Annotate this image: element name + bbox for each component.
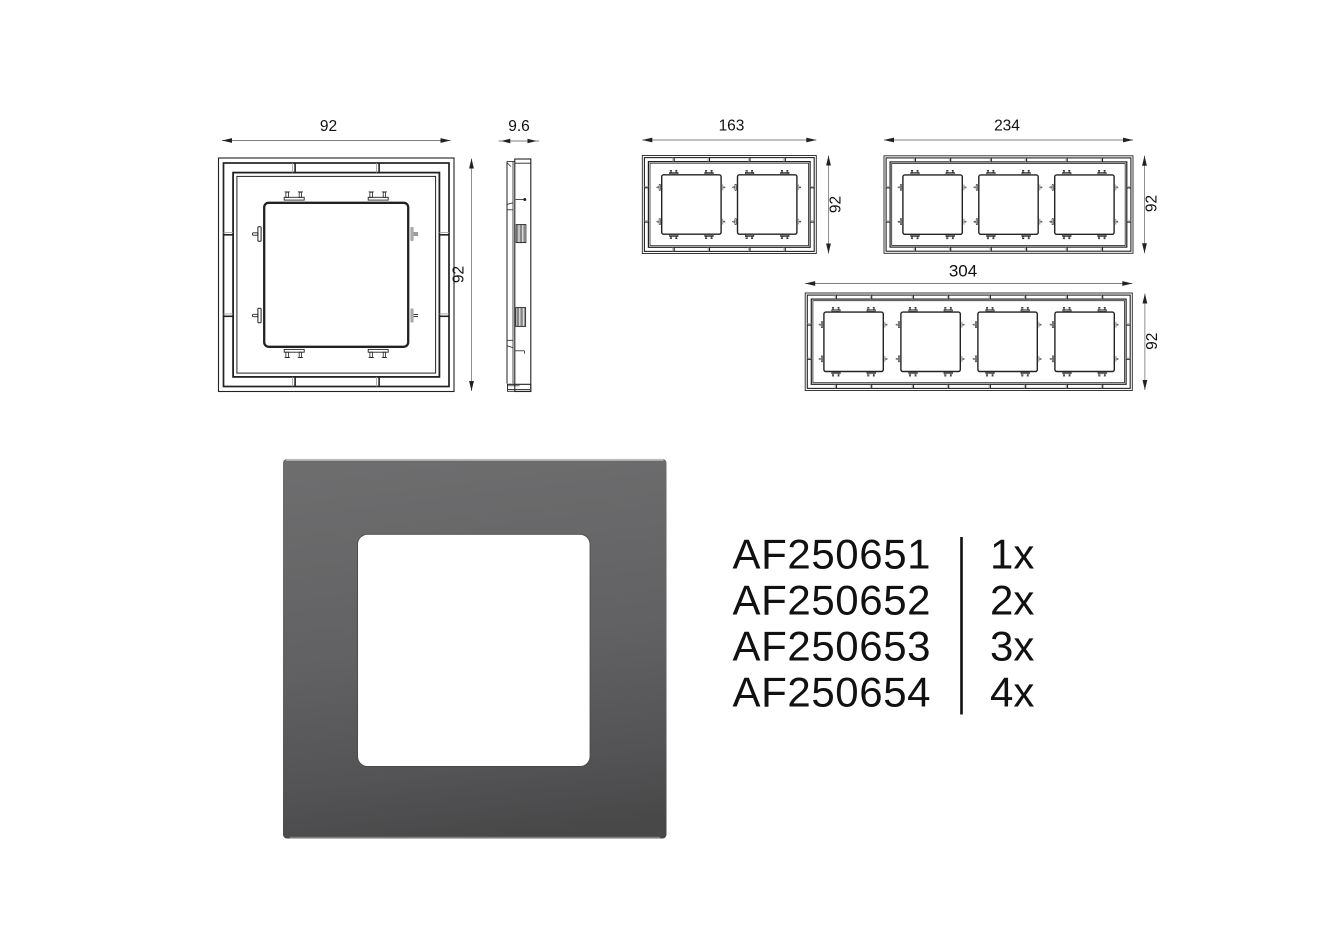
svg-text:AF250652: AF250652 [733, 577, 932, 624]
svg-text:2x: 2x [990, 577, 1034, 624]
svg-text:92: 92 [1144, 333, 1161, 350]
svg-text:AF250651: AF250651 [733, 531, 932, 578]
svg-text:3x: 3x [990, 623, 1034, 670]
svg-text:92: 92 [828, 196, 845, 213]
svg-text:AF250653: AF250653 [733, 623, 932, 670]
svg-text:163: 163 [719, 118, 745, 135]
svg-text:1x: 1x [990, 531, 1034, 578]
svg-text:9.6: 9.6 [508, 118, 530, 135]
svg-text:AF250654: AF250654 [733, 669, 932, 716]
svg-text:304: 304 [949, 262, 977, 281]
svg-text:234: 234 [994, 118, 1020, 135]
svg-text:4x: 4x [990, 669, 1034, 716]
svg-text:92: 92 [1144, 195, 1161, 212]
svg-text:92: 92 [451, 266, 468, 283]
svg-text:92: 92 [320, 118, 337, 135]
